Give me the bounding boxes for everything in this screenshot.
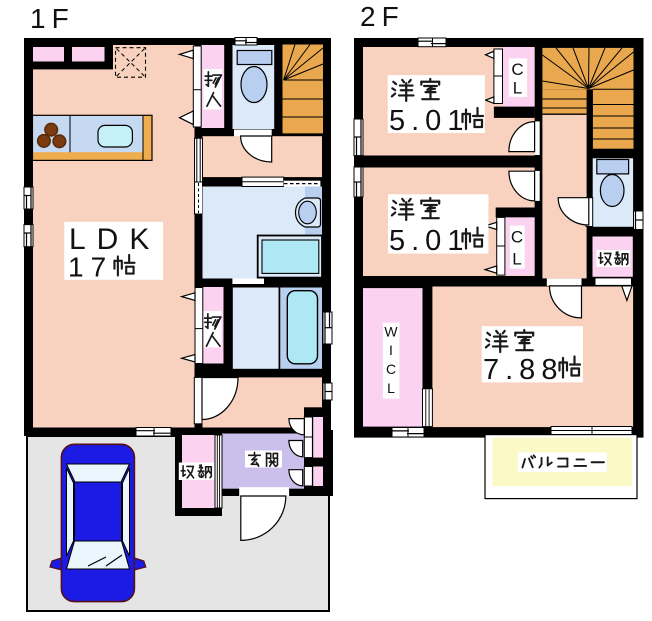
svg-text:C: C <box>511 60 523 79</box>
svg-text:1F: 1F <box>30 3 75 34</box>
svg-text:17: 17 <box>68 252 113 283</box>
svg-text:L: L <box>512 250 521 269</box>
svg-text:7.88: 7.88 <box>483 354 563 386</box>
svg-text:5.01: 5.01 <box>389 225 469 257</box>
svg-text:5.01: 5.01 <box>389 105 469 137</box>
svg-text:C: C <box>511 228 523 247</box>
svg-text:C: C <box>386 361 396 377</box>
svg-text:L: L <box>387 380 395 396</box>
svg-text:I: I <box>389 342 393 358</box>
svg-text:W: W <box>384 324 398 340</box>
svg-text:L: L <box>513 79 522 98</box>
svg-text:2F: 2F <box>360 1 405 32</box>
